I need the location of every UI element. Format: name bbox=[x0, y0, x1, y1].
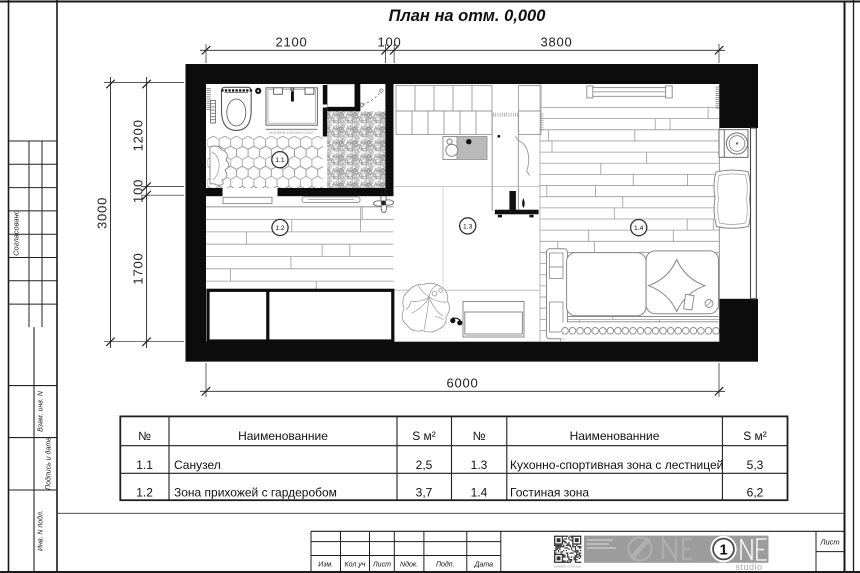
svg-text:100: 100 bbox=[377, 35, 401, 50]
svg-text:Лист: Лист bbox=[819, 538, 839, 547]
svg-text:3000: 3000 bbox=[95, 197, 110, 229]
svg-text:Зона прихожей с гардеробом: Зона прихожей с гардеробом bbox=[174, 486, 337, 500]
svg-text:3800: 3800 bbox=[540, 35, 572, 50]
svg-text:100: 100 bbox=[131, 179, 146, 203]
svg-text:1.3: 1.3 bbox=[471, 458, 488, 472]
svg-text:3,7: 3,7 bbox=[416, 486, 433, 500]
svg-text:6000: 6000 bbox=[446, 375, 478, 390]
svg-text:MODERN 1200 BATH UNIT: MODERN 1200 BATH UNIT bbox=[269, 131, 314, 135]
svg-text:Кухонно-спортивная зона с лест: Кухонно-спортивная зона с лестницей bbox=[510, 458, 723, 472]
svg-text:5,3: 5,3 bbox=[747, 458, 764, 472]
svg-text:Дата: Дата bbox=[474, 562, 494, 569]
svg-text:Гостиная зона: Гостиная зона bbox=[510, 486, 589, 500]
svg-text:1.4: 1.4 bbox=[471, 486, 488, 500]
svg-text:Кол.уч: Кол.уч bbox=[345, 562, 366, 569]
svg-text:Взам. инв. N: Взам. инв. N bbox=[38, 390, 45, 432]
svg-text:S м²: S м² bbox=[412, 429, 436, 443]
svg-text:№: № bbox=[473, 429, 486, 443]
svg-text:2,5: 2,5 bbox=[416, 458, 433, 472]
svg-text:1studio.com.ua: 1studio.com.ua bbox=[554, 564, 582, 569]
svg-text:План на отм. 0,000: План на отм. 0,000 bbox=[389, 7, 547, 25]
svg-text:Инв. N подл.: Инв. N подл. bbox=[37, 510, 45, 551]
svg-text:Санузел: Санузел bbox=[174, 458, 221, 472]
svg-text:studio: studio bbox=[735, 562, 762, 572]
svg-text:1.1: 1.1 bbox=[275, 157, 285, 164]
svg-text:1.2: 1.2 bbox=[136, 486, 153, 500]
svg-text:2100: 2100 bbox=[275, 35, 307, 50]
svg-text:Nдок.: Nдок. bbox=[400, 561, 418, 569]
svg-text:1700: 1700 bbox=[131, 252, 146, 284]
svg-text:№: № bbox=[138, 429, 151, 443]
svg-text:Изм.: Изм. bbox=[318, 562, 333, 569]
svg-text:S м²: S м² bbox=[743, 429, 767, 443]
svg-text:Согласовано: Согласовано bbox=[12, 210, 21, 256]
svg-text:1: 1 bbox=[719, 543, 727, 559]
svg-text:Лист: Лист bbox=[372, 562, 391, 569]
svg-text:1.1: 1.1 bbox=[136, 458, 153, 472]
svg-text:Наименованние: Наименованние bbox=[570, 429, 660, 443]
svg-text:1.3: 1.3 bbox=[463, 223, 473, 230]
svg-text:Подпись и дата: Подпись и дата bbox=[45, 437, 53, 490]
svg-text:1.2: 1.2 bbox=[275, 225, 285, 232]
svg-text:Подп.: Подп. bbox=[436, 561, 455, 569]
svg-text:1200: 1200 bbox=[131, 119, 146, 151]
svg-text:1.4: 1.4 bbox=[634, 225, 644, 232]
svg-text:Наименованние: Наименованние bbox=[238, 429, 328, 443]
svg-text:6,2: 6,2 bbox=[747, 486, 764, 500]
